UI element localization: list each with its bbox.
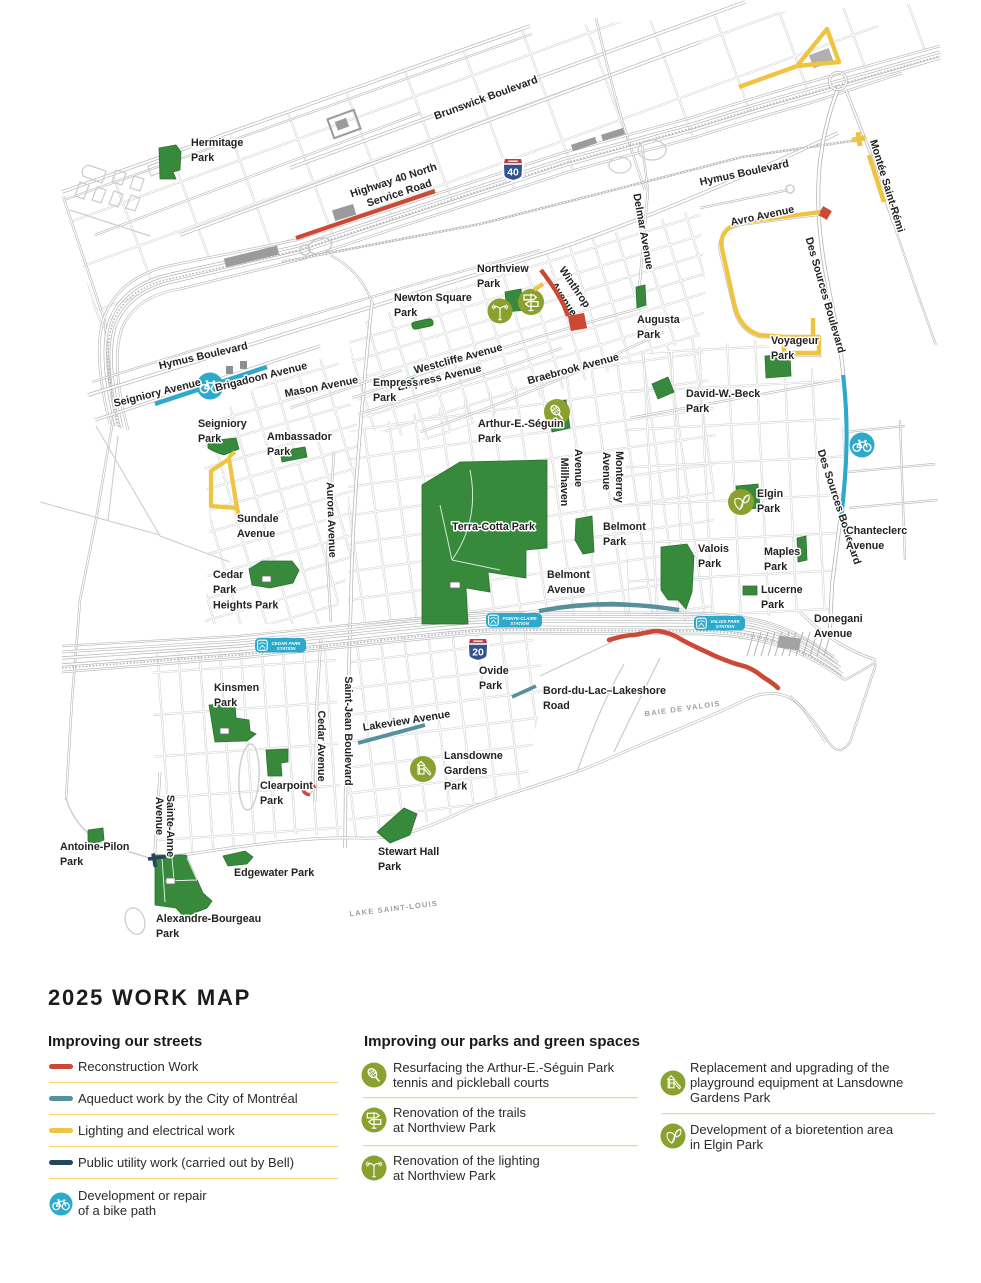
svg-text:Edgewater Park: Edgewater Park: [234, 867, 314, 879]
svg-text:Resurfacing the Arthur-E.-Ségu: Resurfacing the Arthur-E.-Séguin Park: [393, 1060, 615, 1075]
svg-text:Development of a bioretention: Development of a bioretention area: [690, 1122, 894, 1137]
svg-text:STATION: STATION: [510, 621, 529, 626]
svg-text:Renovation of the lighting: Renovation of the lighting: [393, 1153, 540, 1168]
svg-text:POINTE-CLAIRE: POINTE-CLAIRE: [503, 616, 538, 621]
svg-text:STATION: STATION: [716, 624, 735, 629]
svg-text:in Elgin Park: in Elgin Park: [690, 1137, 763, 1152]
svg-text:CEDAR PARK: CEDAR PARK: [272, 641, 302, 646]
svg-text:Lighting and electrical work: Lighting and electrical work: [78, 1123, 235, 1138]
svg-text:Monterrey: Monterrey: [613, 451, 625, 503]
svg-text:Improving our parks and green: Improving our parks and green spaces: [364, 1033, 640, 1050]
svg-text:Cedar Avenue: Cedar Avenue: [315, 710, 327, 781]
svg-text:Avenue: Avenue: [153, 797, 165, 835]
svg-text:Reconstruction Work: Reconstruction Work: [78, 1059, 199, 1074]
svg-text:at Northview Park: at Northview Park: [393, 1168, 496, 1183]
svg-text:Renovation of the trails: Renovation of the trails: [393, 1105, 526, 1120]
svg-text:VALOIS PARK: VALOIS PARK: [710, 619, 740, 624]
svg-text:STATION: STATION: [277, 646, 296, 651]
svg-text:playground equipment at Lansdo: playground equipment at Lansdowne: [690, 1075, 903, 1090]
svg-text:Avenue: Avenue: [572, 449, 584, 487]
svg-text:40: 40: [507, 168, 519, 179]
svg-text:Public utility work (carried o: Public utility work (carried out by Bell…: [78, 1155, 294, 1170]
svg-text:Saint-Jean Boulevard: Saint-Jean Boulevard: [342, 676, 354, 785]
svg-text:Improving our streets: Improving our streets: [48, 1033, 202, 1050]
svg-text:Millhaven: Millhaven: [558, 458, 570, 507]
svg-text:20: 20: [472, 648, 484, 659]
svg-text:of a bike path: of a bike path: [78, 1203, 156, 1218]
svg-text:Avenue: Avenue: [600, 452, 612, 490]
svg-text:Aqueduct work by the City of M: Aqueduct work by the City of Montréal: [78, 1091, 298, 1106]
svg-text:tennis and pickleball courts: tennis and pickleball courts: [393, 1075, 550, 1090]
svg-text:at Northview Park: at Northview Park: [393, 1120, 496, 1135]
svg-text:Development or repair: Development or repair: [78, 1188, 207, 1203]
svg-text:Gardens Park: Gardens Park: [690, 1090, 771, 1105]
svg-text:Terra-Cotta Park: Terra-Cotta Park: [452, 521, 535, 533]
svg-text:2025 WORK MAP: 2025 WORK MAP: [48, 985, 251, 1010]
svg-text:Replacement and upgrading of t: Replacement and upgrading of the: [690, 1060, 889, 1075]
